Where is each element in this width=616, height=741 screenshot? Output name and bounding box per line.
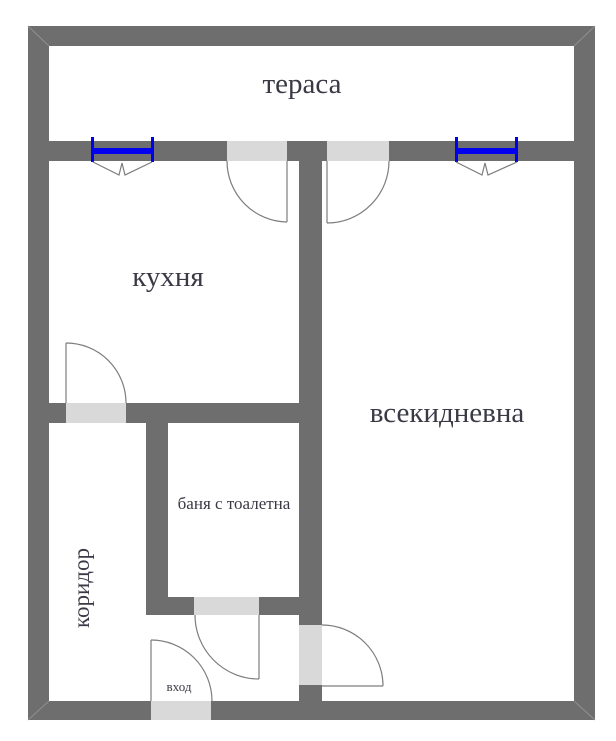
corridor-to-kitchen-door <box>66 343 126 403</box>
threshold-bathroom-door <box>194 597 259 615</box>
door-swing-arc-icon <box>195 615 259 679</box>
room-label-terrace: тераса <box>262 68 341 100</box>
room-label-corridor: коридор <box>69 548 94 628</box>
window-casement-swing-icon <box>93 162 152 175</box>
floorplan-canvas: тераса кухня всекидневна баня с тоалетна… <box>0 0 616 741</box>
bathroom-door <box>195 615 259 679</box>
door-swing-arc-icon <box>322 625 383 686</box>
door-swing-arc-icon <box>227 161 287 222</box>
window-casement-swing-icon <box>456 162 517 175</box>
threshold-corridor-kitchen-door <box>66 403 126 423</box>
threshold-entrance-door <box>151 701 211 720</box>
living-to-terrace-door <box>327 161 389 223</box>
wall-outer-bottom <box>28 701 595 720</box>
window-glass-icon <box>455 148 518 154</box>
room-label-kitchen: кухня <box>132 261 204 293</box>
corridor-to-living-door <box>322 625 383 686</box>
floorplan-svg: тераса кухня всекидневна баня с тоалетна… <box>0 0 616 741</box>
wall-outer-right <box>574 26 595 720</box>
wall-corridor-bathroom <box>146 423 168 615</box>
room-label-bathroom: баня с тоалетна <box>178 494 291 513</box>
room-label-entrance: вход <box>167 679 192 694</box>
window-glass-icon <box>91 148 154 154</box>
threshold-living-terrace-door <box>327 141 389 161</box>
wall-kitchen-living-divider <box>299 161 322 701</box>
room-label-living: всекидневна <box>370 397 525 429</box>
threshold-kitchen-terrace-door <box>227 141 287 161</box>
wall-outer-top <box>28 26 595 46</box>
threshold-corridor-living-door <box>299 625 322 685</box>
door-swing-arc-icon <box>327 161 389 223</box>
door-swing-arc-icon <box>66 343 126 403</box>
wall-outer-left <box>28 26 49 720</box>
kitchen-to-terrace-door <box>227 161 287 222</box>
